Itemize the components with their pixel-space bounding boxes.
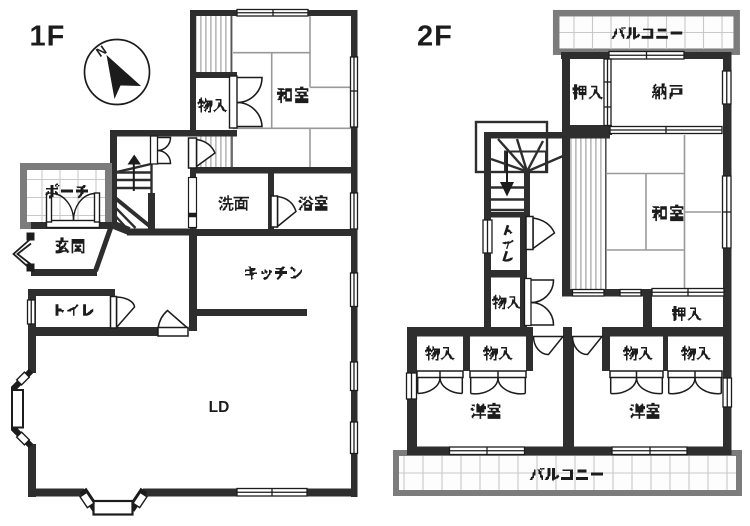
svg-text:2F: 2F [417,21,453,53]
svg-text:1F: 1F [30,21,66,53]
svg-text:LD: LD [209,399,230,416]
